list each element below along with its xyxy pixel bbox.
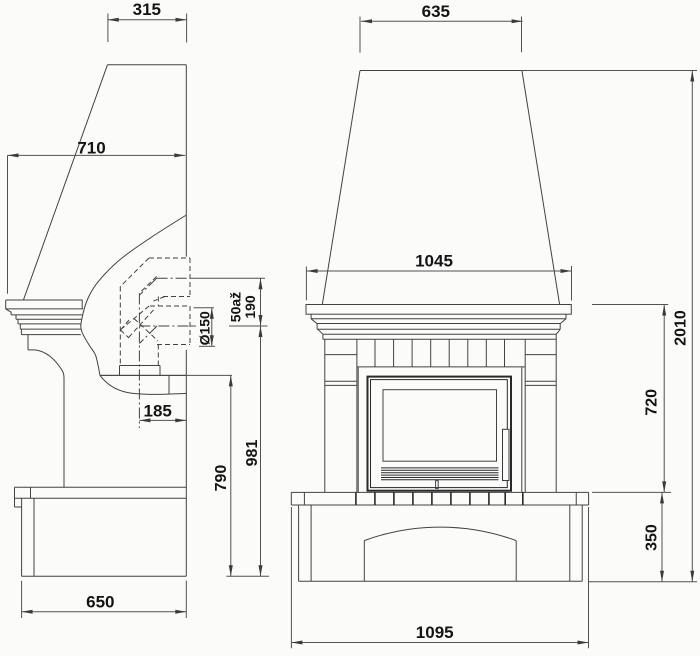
svg-text:Ø150: Ø150 [196,311,212,345]
svg-text:190: 190 [242,295,258,319]
svg-text:710: 710 [77,138,105,157]
svg-text:650: 650 [86,592,114,611]
svg-text:720: 720 [644,389,661,416]
svg-text:315: 315 [133,0,161,19]
svg-text:1095: 1095 [416,623,454,642]
svg-text:350: 350 [644,524,661,551]
svg-text:1045: 1045 [415,252,453,271]
svg-text:635: 635 [422,2,450,21]
svg-text:50až: 50až [228,292,244,322]
svg-text:2010: 2010 [673,310,690,346]
svg-text:981: 981 [244,440,261,467]
svg-text:185: 185 [144,401,172,420]
svg-text:790: 790 [213,465,230,492]
